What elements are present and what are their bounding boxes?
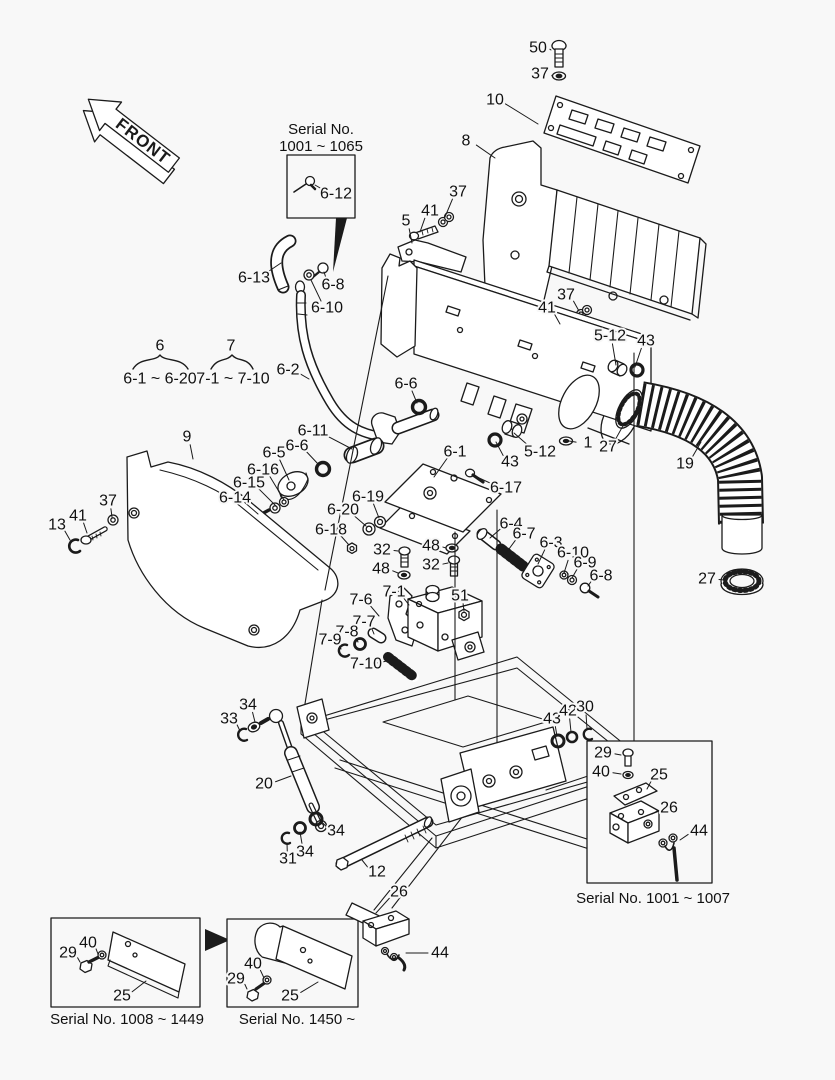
callout-label: 6-8: [589, 568, 612, 585]
bushing-6-11: [344, 436, 383, 464]
callout-label: 29: [59, 945, 77, 962]
callout-label: 37: [99, 493, 117, 510]
bolt-32-left: [399, 547, 410, 567]
callout-label: 25: [281, 988, 299, 1005]
clip-13: [69, 540, 80, 553]
washer-6-10-lever: [304, 270, 314, 280]
oring-43-left: [489, 434, 501, 446]
callout-label: 32: [422, 557, 440, 574]
callout-label: 10: [486, 92, 504, 109]
callout-label: 6-14: [219, 490, 251, 507]
spring-6-7: [501, 549, 523, 566]
callout-leader: [374, 504, 379, 518]
callout-leader: [299, 373, 309, 379]
callout-label: 7: [227, 338, 236, 355]
callout-label: 20: [255, 776, 273, 793]
serial-box-top-caption: Serial No. 1001 ~ 1065: [256, 121, 386, 155]
callout-label: 6-6: [285, 438, 308, 455]
ring-42: [567, 732, 577, 742]
parts-diagram-page: FRONT: [0, 0, 835, 1080]
callout-label: 33: [220, 711, 238, 728]
wire-44-bottom: [382, 948, 405, 971]
callout-label: 42: [559, 703, 577, 720]
washer-48-left: [398, 571, 410, 579]
callout-label: 41: [69, 508, 87, 525]
callout-label: 48: [422, 538, 440, 555]
bracket-7-1: [408, 586, 484, 661]
callout-label: 6-13: [238, 270, 270, 287]
callout-label: 40: [592, 764, 610, 781]
callout-label: 25: [650, 767, 668, 784]
callout-label: 5-12: [594, 328, 626, 345]
callout-label: 6-18: [315, 522, 347, 539]
callout-leader: [362, 860, 368, 867]
callout-leader: [394, 550, 398, 551]
callout-label: 50: [529, 40, 547, 57]
callout-label: 8: [462, 133, 471, 150]
callout-label: 6-2: [276, 362, 299, 379]
frame-right-bracket: [297, 699, 566, 822]
callout-label: 1: [584, 435, 593, 452]
callout-label: 44: [690, 823, 708, 840]
callout-label: 37: [531, 66, 549, 83]
bolt-6-8-lever: [313, 263, 328, 277]
callout-leader: [276, 776, 291, 782]
callout-leader: [311, 280, 321, 301]
callout-label: 41: [421, 203, 439, 220]
callout-leader: [505, 104, 538, 124]
callout-label: 43: [637, 333, 655, 350]
callout-label: 27: [698, 571, 716, 588]
callout-leader: [393, 571, 398, 573]
callout-label: 48: [372, 561, 390, 578]
washer-37-top: [553, 72, 566, 80]
callout-label: 29: [227, 971, 245, 988]
callout-leader: [719, 579, 724, 580]
callout-label: 7-6: [349, 592, 372, 609]
serial-box-top: [287, 155, 355, 272]
handle-bar: [372, 407, 440, 444]
flange-6-5: [274, 467, 313, 501]
serial-box-bottom-center-caption: Serial No. 1450 ~: [216, 1011, 378, 1028]
callout-label: 27: [599, 439, 617, 456]
lever-knob-6-13: [277, 241, 290, 290]
callout-leader: [550, 49, 551, 50]
callout-label: 6: [156, 338, 165, 355]
callout-label: 6-7: [512, 526, 535, 543]
callout-leader: [190, 445, 193, 459]
callout-leader: [84, 523, 87, 533]
washer-6-16: [280, 498, 289, 507]
callout-label: 26: [390, 884, 408, 901]
callout-label: 6-5: [262, 445, 285, 462]
front-direction-arrow: FRONT: [70, 85, 187, 191]
callout-label: 7-1: [382, 584, 405, 601]
serial-box-right-caption: Serial No. 1001 ~ 1007: [572, 890, 734, 907]
washer-6-19: [375, 517, 386, 528]
callout-label: 7-9: [318, 632, 341, 649]
callout-label: 6-17: [490, 480, 522, 497]
hose-clamp-27-bottom: [721, 569, 763, 595]
callout-label: 40: [79, 935, 97, 952]
group-braces: [133, 355, 253, 369]
callout-label: 40: [244, 956, 262, 973]
callout-label: 6-6: [394, 376, 417, 393]
plate-6-3: [520, 553, 555, 589]
callout-label: 29: [594, 745, 612, 762]
callout-label: 34: [239, 697, 257, 714]
callout-label: 25: [113, 988, 131, 1005]
bolt-32-right: [449, 556, 460, 576]
callout-label: 31: [279, 851, 297, 868]
callout-label: 13: [48, 517, 66, 534]
pin-12: [336, 816, 433, 870]
washer-48-right: [446, 544, 458, 552]
callout-label: 7-1 ~ 7-10: [196, 371, 269, 388]
serial-box-bottom-left-caption: Serial No. 1008 ~ 1449: [46, 1011, 208, 1028]
callout-label: 6-8: [321, 277, 344, 294]
washer-37-left: [108, 515, 118, 525]
callout-leader: [253, 712, 255, 722]
callout-label: 43: [501, 454, 519, 471]
callout-label: 26: [660, 800, 678, 817]
serial-box-bottom-left: [51, 918, 230, 1007]
callout-label: 6-20: [327, 502, 359, 519]
bolt-41-left: [81, 529, 105, 544]
callout-label: 6-12: [320, 186, 352, 203]
callout-label: 32: [373, 542, 391, 559]
callout-label: 37: [449, 184, 467, 201]
callout-label: 7-10: [350, 656, 382, 673]
spring-7-10: [388, 657, 414, 677]
callout-leader: [476, 145, 495, 158]
callout-label: 34: [327, 823, 345, 840]
screw-6-17: [466, 469, 484, 482]
serial-box-right: [587, 741, 712, 883]
callout-label: 41: [538, 300, 556, 317]
vent-plate-10: [544, 96, 700, 183]
callout-label: 44: [431, 945, 449, 962]
callout-leader: [443, 563, 448, 564]
callout-label: 34: [296, 844, 314, 861]
flex-hose-19: [640, 404, 762, 554]
callout-label: 37: [557, 287, 575, 304]
callout-leader: [570, 719, 571, 732]
callout-label: 19: [676, 456, 694, 473]
callout-label: 6-10: [311, 300, 343, 317]
callout-label: 6-1: [443, 444, 466, 461]
callout-label: 12: [368, 864, 386, 881]
callout-label: 30: [576, 699, 594, 716]
serial-caption-line2: 1001 ~ 1065: [256, 138, 386, 155]
oring-6-6-right: [413, 401, 426, 414]
clip-31: [282, 833, 290, 844]
bolt-50: [552, 41, 566, 67]
serial-caption-line1: Serial No.: [256, 121, 386, 138]
washer-6-9: [568, 576, 577, 585]
clip-30: [584, 729, 592, 740]
callout-leader: [586, 715, 587, 729]
callout-label: 9: [183, 429, 192, 446]
callout-label: 5-12: [524, 444, 556, 461]
callout-label: 5: [402, 213, 411, 230]
callout-label: 6-1 ~ 6-20: [123, 371, 196, 388]
exploded-view-drawing: FRONT: [0, 0, 835, 1080]
callout-label: 51: [451, 588, 469, 605]
